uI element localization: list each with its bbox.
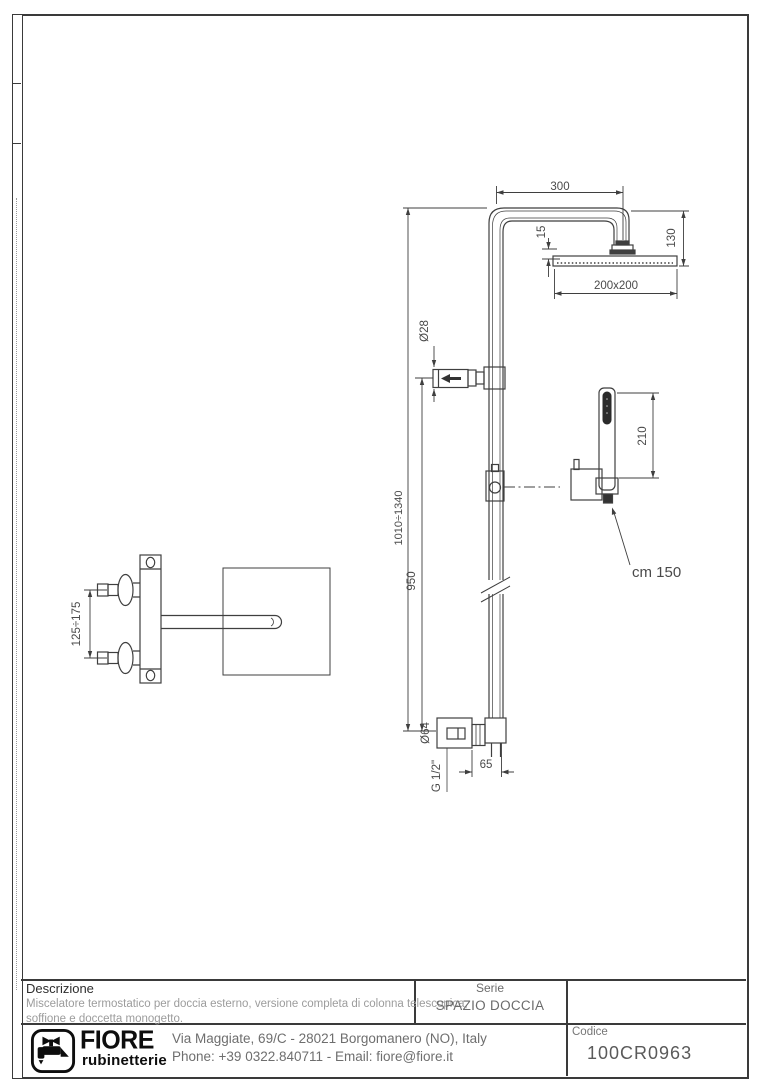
brand-subtitle: rubinetterie (82, 1052, 167, 1069)
rain-shower-head (553, 256, 677, 266)
code-value: 100CR0963 (587, 1043, 692, 1064)
dimension-arrowheads (406, 190, 686, 774)
diverter-valve (433, 367, 505, 389)
dim-wall-offset: 65 (480, 759, 493, 771)
hose-nut (604, 494, 613, 503)
dim-head-inset: 15 (536, 226, 548, 239)
faucet-logo-icon (30, 1028, 76, 1074)
company-contact: Phone: +39 0322.840711 - Email: fiore@fi… (172, 1049, 453, 1064)
knob-arrow-icon (441, 374, 461, 383)
dim-hose-length: cm 150 (632, 564, 681, 581)
dim-valve-spacing: 125÷175 (71, 602, 83, 647)
fiore-logo: FIORE rubinetterie (30, 1027, 170, 1075)
shower-column-technical-drawing: 300 130 15 200x200 Ø28 210 1010÷1340 950… (0, 0, 762, 1092)
dim-handshower-length: 210 (637, 426, 649, 445)
description-text-line1: Miscelatore termostatico per doccia este… (26, 998, 468, 1010)
drawing-sheet: 300 130 15 200x200 Ø28 210 1010÷1340 950… (0, 0, 762, 1092)
description-text-line2: soffione e doccetta monogetto. (26, 1013, 183, 1025)
dim-column-height-range: 1010÷1340 (393, 491, 405, 546)
company-address: Via Maggiate, 69/C - 28021 Borgomanero (… (172, 1031, 487, 1046)
dim-flange-diameter: Ø64 (420, 722, 432, 744)
titleblock-divider (566, 979, 568, 1076)
tube-break-symbol (481, 577, 510, 602)
titleblock-top-line (21, 979, 746, 981)
series-label: Serie (414, 981, 566, 995)
dim-lower-column-height: 950 (406, 571, 418, 590)
mixer-top-view (84, 555, 330, 683)
description-label: Descrizione (26, 981, 94, 996)
dim-arm-length: 300 (550, 181, 569, 193)
series-value: SPAZIO DOCCIA (414, 998, 566, 1013)
dim-thread-size: G 1/2" (431, 760, 443, 792)
wall-flange-assembly (437, 718, 506, 792)
dimension-lines (403, 186, 689, 777)
code-label: Codice (572, 1026, 608, 1038)
dim-head-size: 200x200 (594, 280, 638, 292)
series-cell: Serie SPAZIO DOCCIA (414, 981, 566, 1013)
dim-head-drop: 130 (666, 228, 678, 247)
dim-knob-diameter: Ø28 (419, 320, 431, 342)
